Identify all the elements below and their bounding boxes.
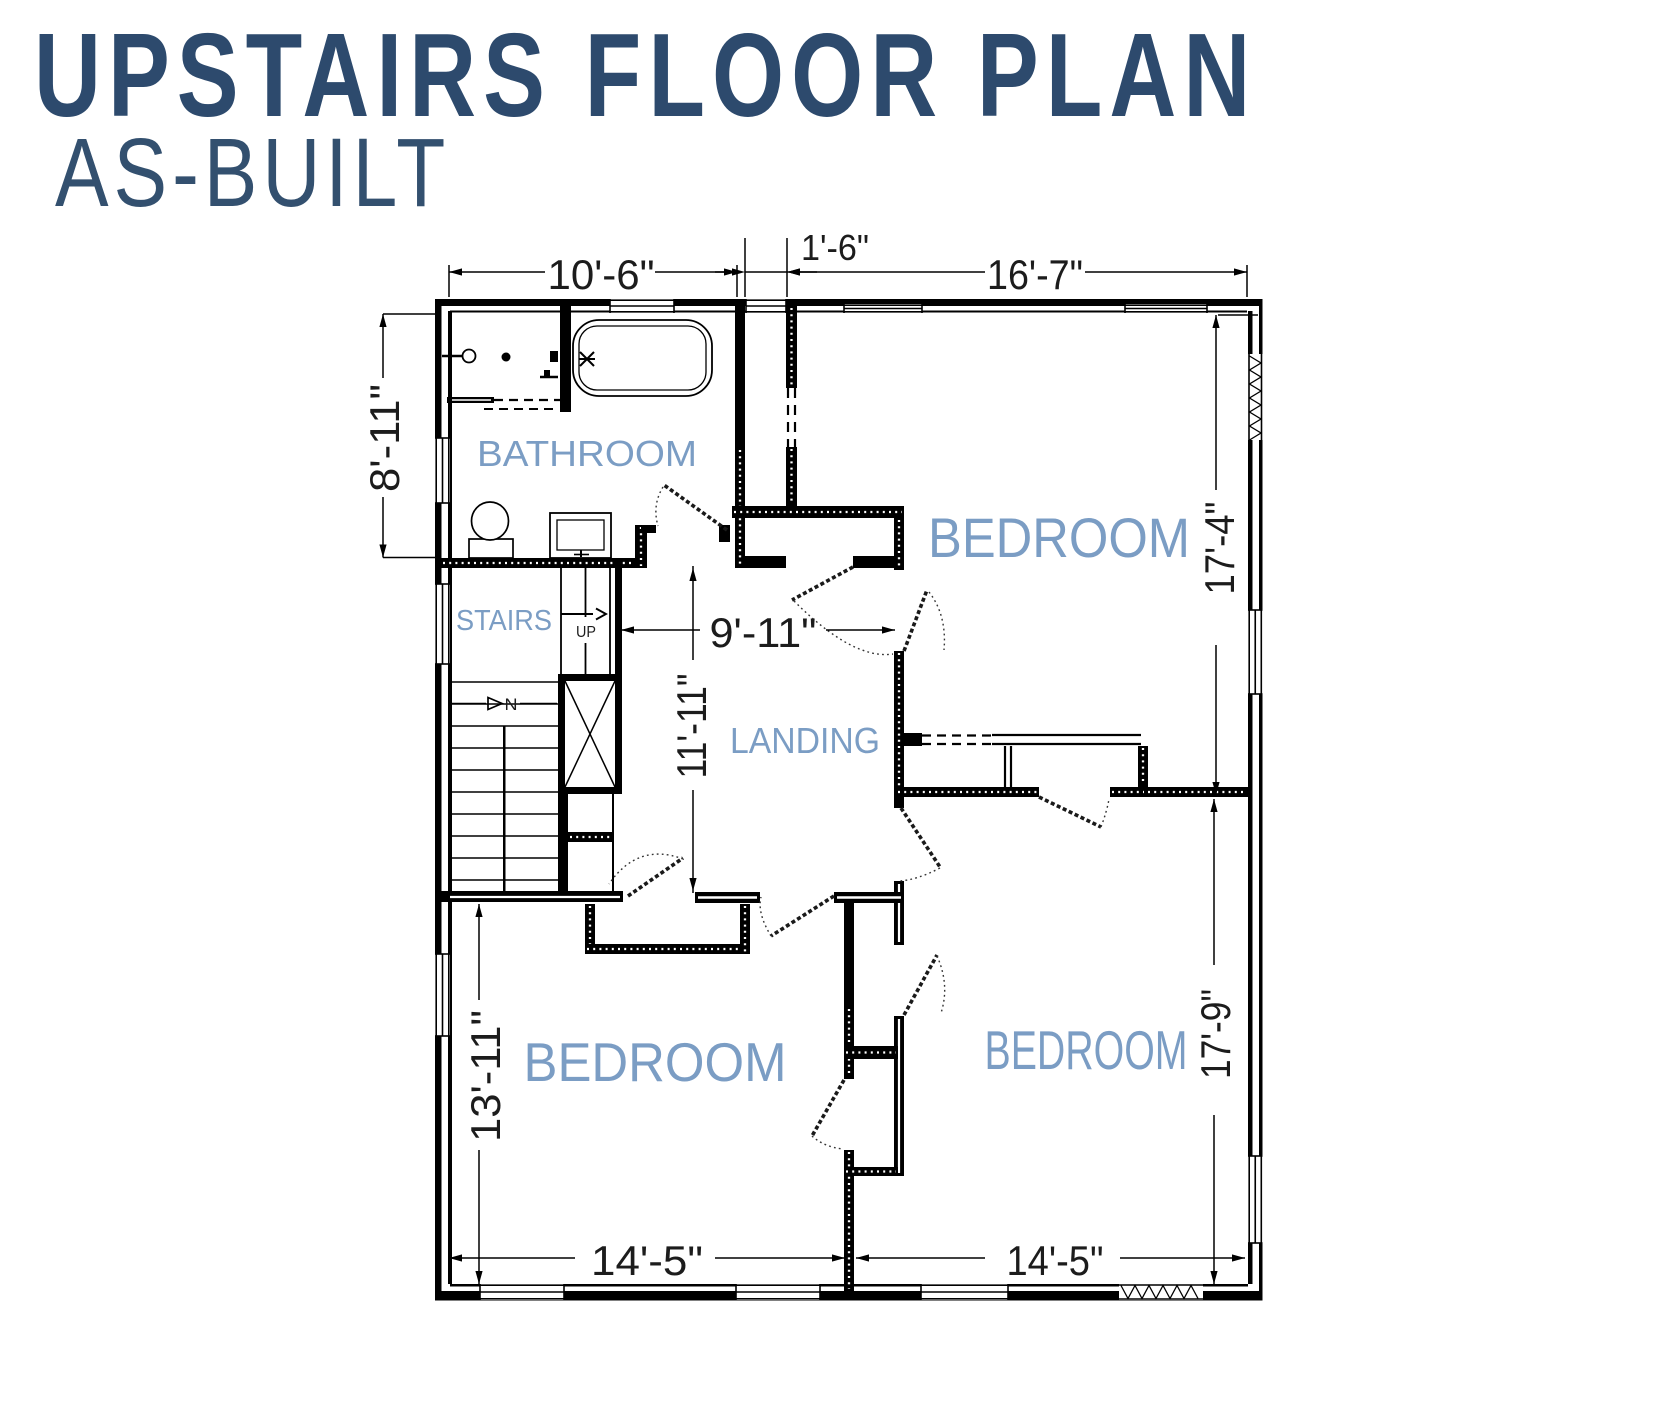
svg-text:10'-6": 10'-6" [548, 251, 655, 298]
svg-text:16'-7": 16'-7" [987, 251, 1083, 298]
svg-text:BEDROOM: BEDROOM [928, 506, 1190, 569]
svg-text:1'-6": 1'-6" [801, 227, 869, 268]
svg-text:STAIRS: STAIRS [456, 605, 552, 637]
svg-text:8'-11": 8'-11" [361, 384, 408, 492]
svg-text:9'-11": 9'-11" [710, 609, 817, 656]
svg-text:N: N [505, 695, 518, 714]
svg-text:17'-4": 17'-4" [1196, 502, 1243, 595]
svg-text:14'-5": 14'-5" [1007, 1237, 1104, 1284]
svg-text:BEDROOM: BEDROOM [524, 1031, 787, 1093]
svg-text:13'-11": 13'-11" [462, 1010, 509, 1142]
svg-text:14'-5": 14'-5" [591, 1237, 703, 1284]
svg-text:UP: UP [576, 624, 596, 641]
svg-text:BEDROOM: BEDROOM [985, 1019, 1188, 1081]
svg-text:BATHROOM: BATHROOM [477, 433, 697, 474]
svg-text:LANDING: LANDING [730, 720, 880, 761]
svg-text:11'-11": 11'-11" [668, 674, 715, 779]
svg-text:17'-9": 17'-9" [1192, 989, 1239, 1079]
